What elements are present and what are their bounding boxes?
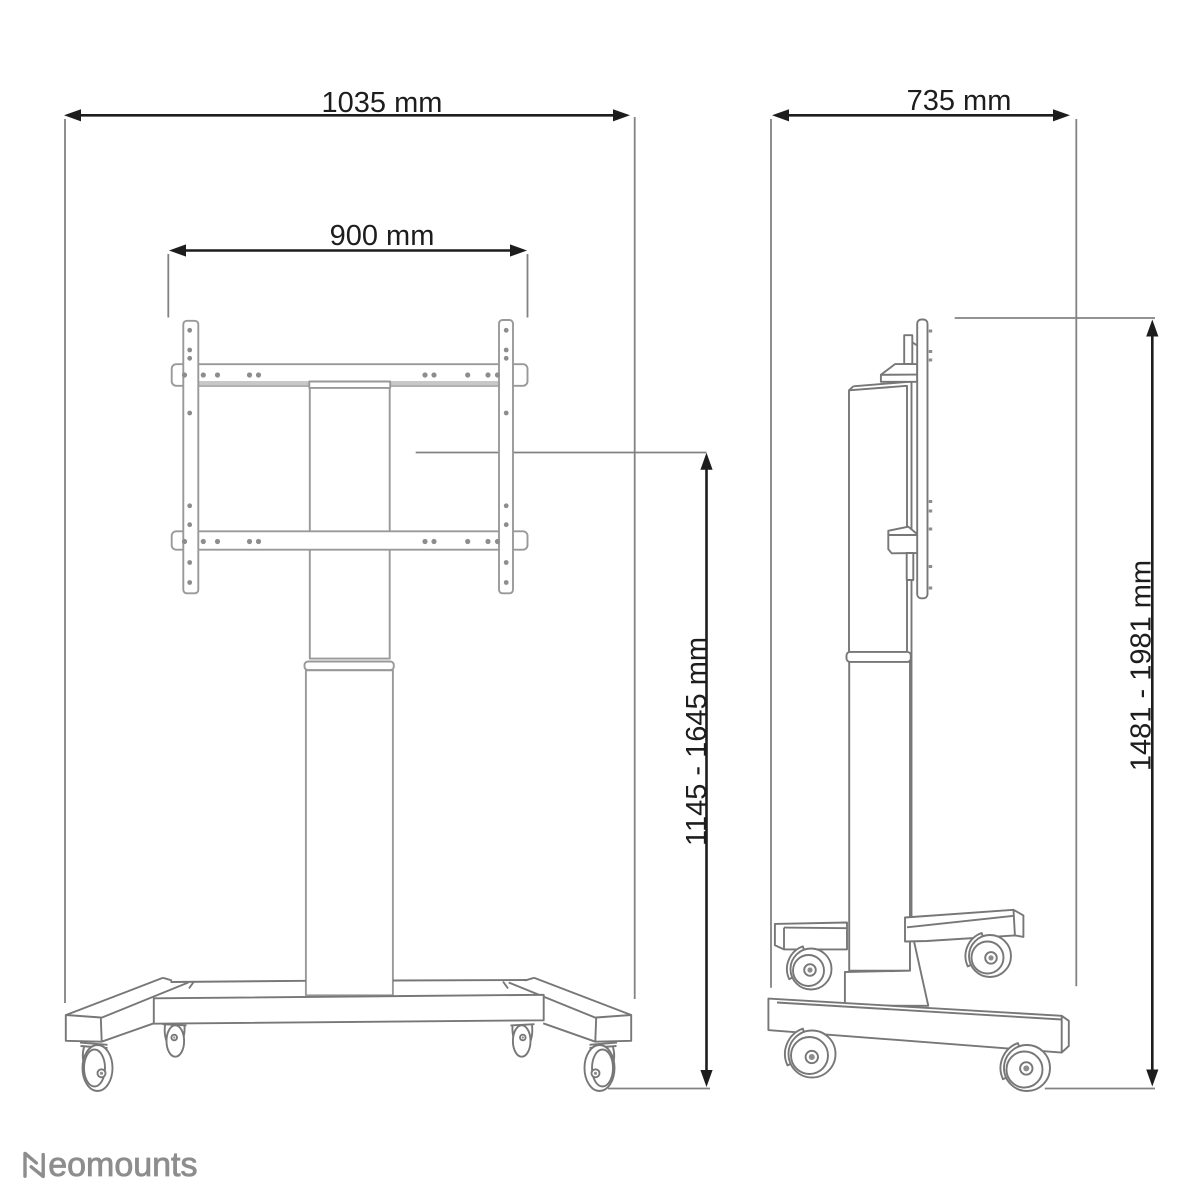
svg-text:735 mm: 735 mm [907,85,1012,117]
svg-text:1481 - 1981 mm: 1481 - 1981 mm [1126,560,1158,771]
svg-text:900 mm: 900 mm [330,220,435,252]
svg-text:eomounts: eomounts [48,1146,197,1184]
svg-text:1145 - 1645 mm: 1145 - 1645 mm [681,637,713,846]
